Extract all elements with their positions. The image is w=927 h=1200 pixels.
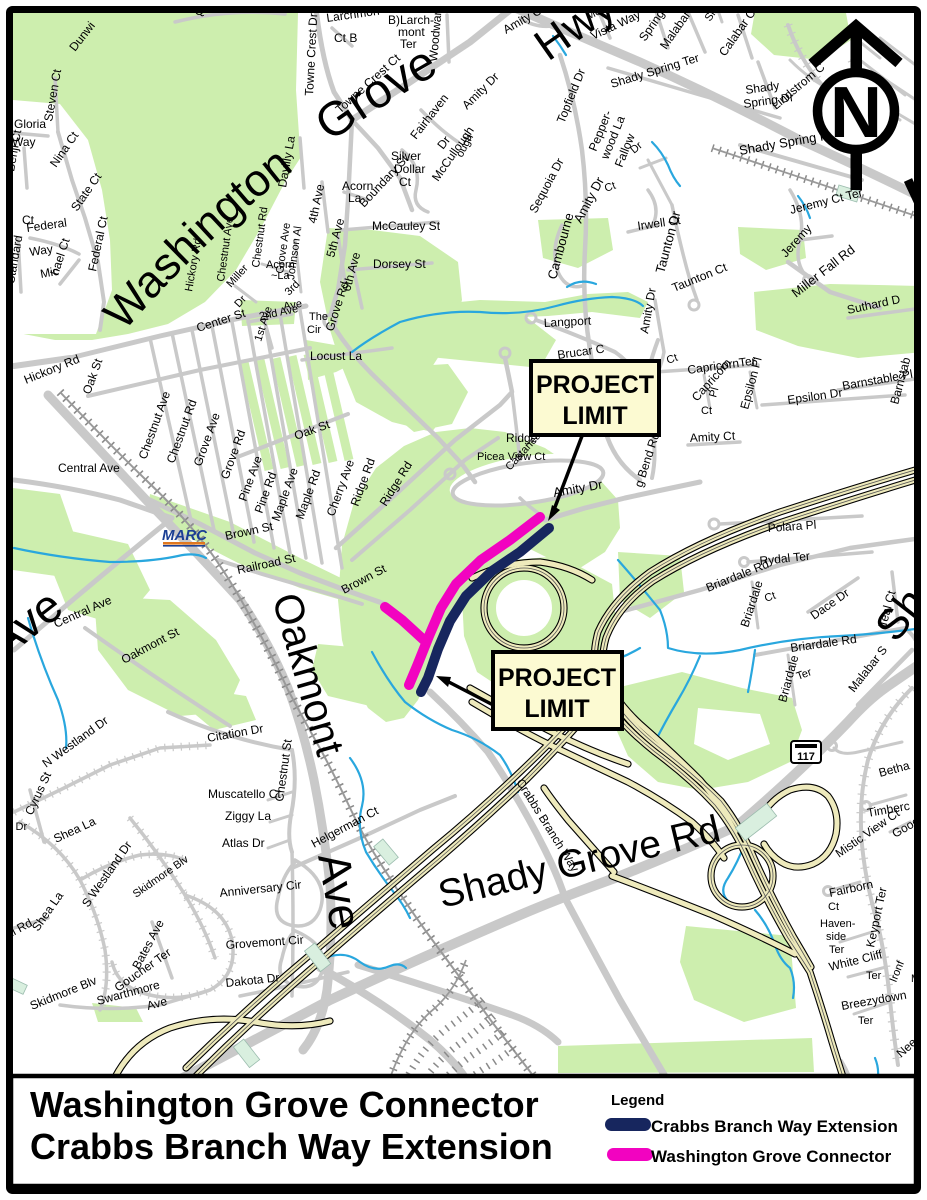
svg-text:La: La	[348, 191, 362, 205]
svg-text:Crabbs Branch Way Extension: Crabbs Branch Way Extension	[30, 1126, 553, 1167]
svg-text:Washington Grove Connector: Washington Grove Connector	[651, 1147, 892, 1166]
svg-text:Ter: Ter	[866, 970, 882, 982]
svg-text:Crabbs Branch Way Extension: Crabbs Branch Way Extension	[651, 1117, 898, 1136]
svg-text:Legend: Legend	[611, 1092, 664, 1109]
svg-text:Ct: Ct	[828, 901, 839, 913]
svg-text:Ter: Ter	[829, 944, 845, 956]
svg-text:Haven-: Haven-	[820, 918, 856, 930]
svg-text:Ziggy La: Ziggy La	[225, 809, 271, 823]
svg-text:Langport: Langport	[543, 314, 592, 330]
svg-text:N: N	[830, 73, 882, 153]
svg-text:side: side	[826, 931, 846, 943]
svg-text:Atlas Dr: Atlas Dr	[222, 836, 265, 850]
svg-text:LIMIT: LIMIT	[524, 695, 589, 723]
svg-text:Washington Grove Connector: Washington Grove Connector	[30, 1084, 539, 1125]
svg-text:Dorsey St: Dorsey St	[373, 257, 426, 271]
svg-text:Ct B: Ct B	[334, 31, 357, 45]
svg-text:Ct: Ct	[399, 175, 412, 189]
svg-text:Cir: Cir	[307, 324, 321, 336]
svg-text:MARC: MARC	[162, 527, 208, 544]
svg-text:LIMIT: LIMIT	[562, 402, 627, 430]
svg-text:PROJECT: PROJECT	[536, 371, 654, 399]
svg-text:PROJECT: PROJECT	[498, 664, 616, 692]
svg-text:McCauley St: McCauley St	[372, 219, 441, 233]
svg-text:Amity Ct: Amity Ct	[689, 429, 736, 445]
svg-text:The: The	[309, 311, 328, 323]
svg-text:117: 117	[797, 751, 815, 763]
svg-text:Gloria: Gloria	[14, 117, 46, 131]
svg-text:Locust La: Locust La	[310, 349, 362, 363]
svg-text:Ct: Ct	[701, 405, 712, 417]
svg-text:Muscatello Ct: Muscatello Ct	[208, 787, 281, 801]
svg-text:Ter: Ter	[858, 1015, 874, 1027]
svg-text:Central Ave: Central Ave	[58, 461, 120, 475]
